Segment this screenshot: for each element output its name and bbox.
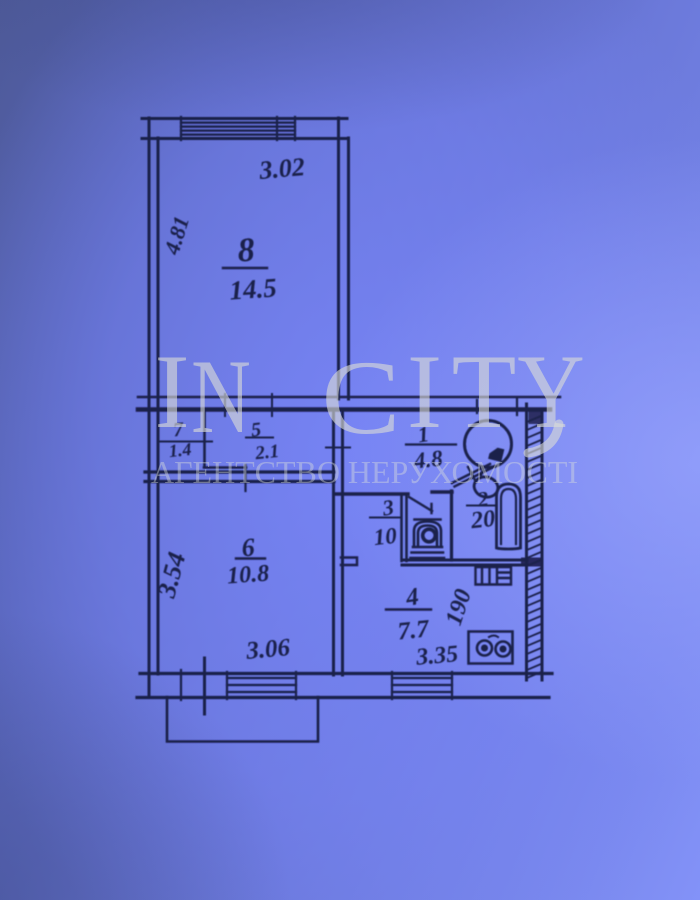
svg-text:T: T xyxy=(452,333,517,450)
svg-text:3.06: 3.06 xyxy=(244,634,291,665)
svg-text:20: 20 xyxy=(469,506,497,534)
svg-text:190: 190 xyxy=(441,586,477,628)
svg-text:4: 4 xyxy=(403,583,420,612)
svg-text:10.8: 10.8 xyxy=(226,561,270,590)
svg-text:I: I xyxy=(407,333,442,450)
svg-text:N: N xyxy=(191,337,251,455)
svg-text:АГЕНТСТВО НЕРУХОМОСТІ: АГЕНТСТВО НЕРУХОМОСТІ xyxy=(151,454,578,490)
svg-text:7.7: 7.7 xyxy=(396,615,431,645)
svg-text:14.5: 14.5 xyxy=(228,272,277,305)
svg-text:Y: Y xyxy=(517,333,584,451)
svg-text:8: 8 xyxy=(236,231,256,269)
svg-text:10: 10 xyxy=(372,523,398,550)
svg-text:C: C xyxy=(321,340,400,457)
svg-text:I: I xyxy=(154,333,189,450)
svg-text:4.81: 4.81 xyxy=(159,213,194,258)
svg-text:3.35: 3.35 xyxy=(414,641,459,671)
svg-text:3.02: 3.02 xyxy=(257,152,306,185)
